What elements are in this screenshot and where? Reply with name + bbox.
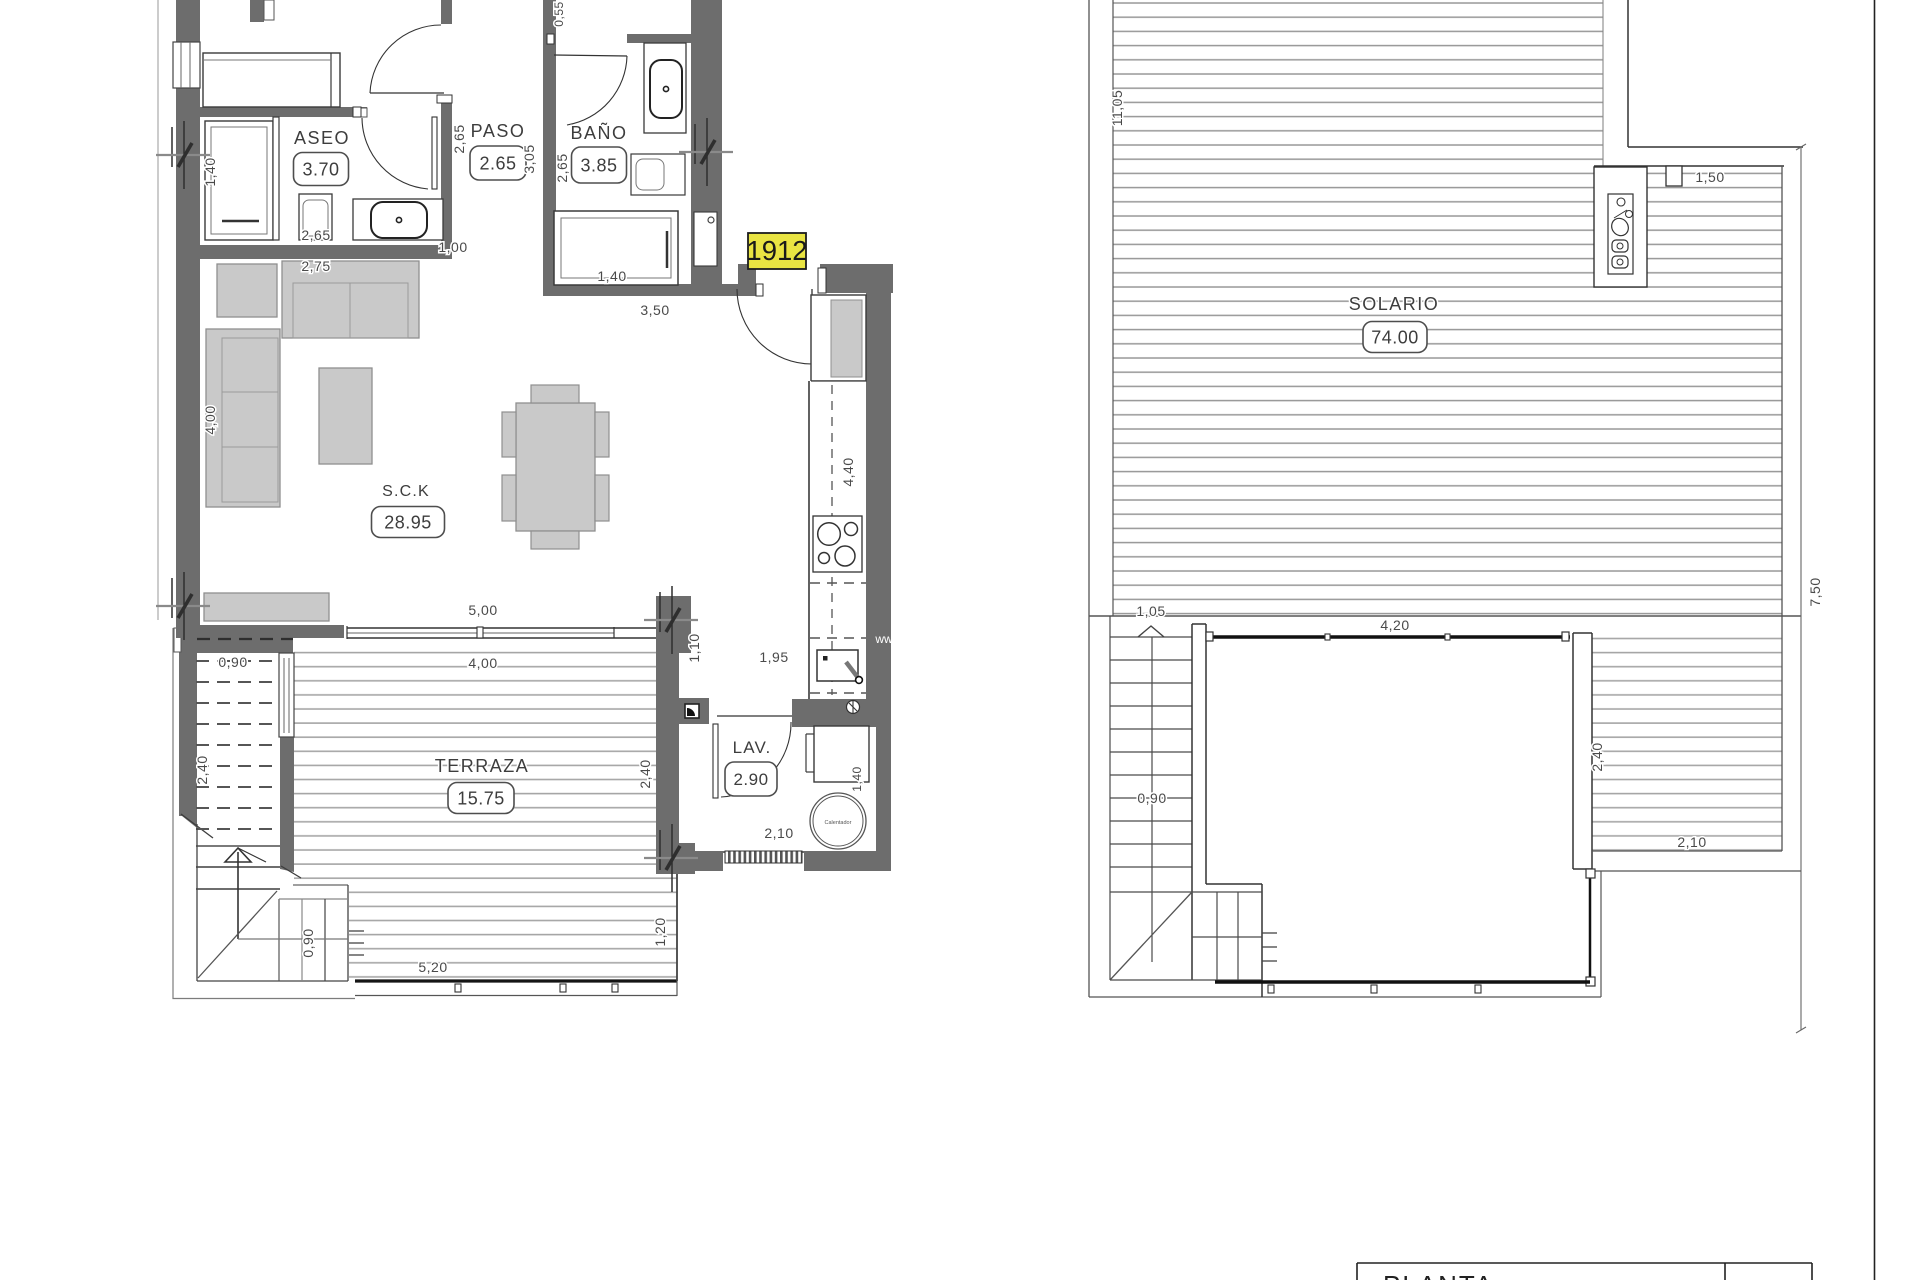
svg-text:11,05: 11,05 — [1109, 90, 1125, 127]
svg-text:2.65: 2.65 — [479, 153, 516, 173]
svg-text:LAV.: LAV. — [733, 738, 772, 757]
svg-text:1,40: 1,40 — [202, 157, 218, 186]
svg-text:5,20: 5,20 — [418, 959, 447, 975]
svg-text:ASEO: ASEO — [294, 128, 350, 148]
svg-text:2,10: 2,10 — [764, 825, 793, 841]
svg-text:2,40: 2,40 — [637, 759, 653, 788]
svg-text:2,65: 2,65 — [451, 124, 467, 153]
svg-text:1,50: 1,50 — [1695, 169, 1724, 185]
svg-text:TERRAZA: TERRAZA — [435, 756, 530, 776]
svg-text:4,00: 4,00 — [202, 405, 218, 434]
svg-text:2,10: 2,10 — [1677, 834, 1706, 850]
svg-text:3,50: 3,50 — [640, 302, 669, 318]
svg-text:1,40: 1,40 — [850, 766, 864, 791]
svg-text:1,10: 1,10 — [686, 633, 702, 662]
svg-text:5,00: 5,00 — [468, 602, 497, 618]
svg-text:SOLARIO: SOLARIO — [1349, 294, 1440, 314]
svg-text:3.85: 3.85 — [580, 155, 617, 175]
svg-text:4,20: 4,20 — [1380, 617, 1409, 633]
svg-text:15.75: 15.75 — [457, 788, 505, 808]
svg-text:1,00: 1,00 — [438, 239, 467, 255]
svg-text:BAÑO: BAÑO — [570, 122, 627, 143]
svg-text:2,40: 2,40 — [1589, 742, 1605, 771]
svg-text:4,40: 4,40 — [840, 457, 856, 486]
svg-text:1,20: 1,20 — [652, 917, 668, 946]
svg-text:2,65: 2,65 — [554, 153, 570, 182]
svg-text:2,75: 2,75 — [301, 258, 330, 274]
svg-text:PASO: PASO — [471, 121, 526, 141]
svg-text:PLANTA: PLANTA — [1383, 1270, 1494, 1280]
svg-text:2,40: 2,40 — [194, 755, 210, 784]
svg-text:2,65: 2,65 — [301, 227, 330, 243]
svg-text:0,90: 0,90 — [218, 654, 247, 670]
svg-text:74.00: 74.00 — [1371, 327, 1419, 347]
svg-text:1,40: 1,40 — [597, 268, 626, 284]
svg-text:3,05: 3,05 — [521, 144, 537, 173]
svg-text:1,05: 1,05 — [1136, 603, 1165, 619]
svg-text:0,55: 0,55 — [552, 1, 566, 26]
svg-text:2.90: 2.90 — [733, 770, 768, 789]
svg-text:Calentador: Calentador — [825, 820, 852, 826]
svg-text:4,00: 4,00 — [468, 655, 497, 671]
svg-text:1,95: 1,95 — [759, 649, 788, 665]
svg-text:1912: 1912 — [746, 235, 807, 266]
svg-text:0,90: 0,90 — [300, 928, 316, 957]
svg-text:3.70: 3.70 — [302, 159, 339, 179]
svg-text:7,50: 7,50 — [1807, 577, 1823, 606]
svg-text:ww: ww — [874, 632, 893, 646]
svg-text:28.95: 28.95 — [384, 512, 432, 532]
svg-text:0,90: 0,90 — [1137, 790, 1166, 806]
svg-text:S.C.K: S.C.K — [382, 483, 430, 500]
